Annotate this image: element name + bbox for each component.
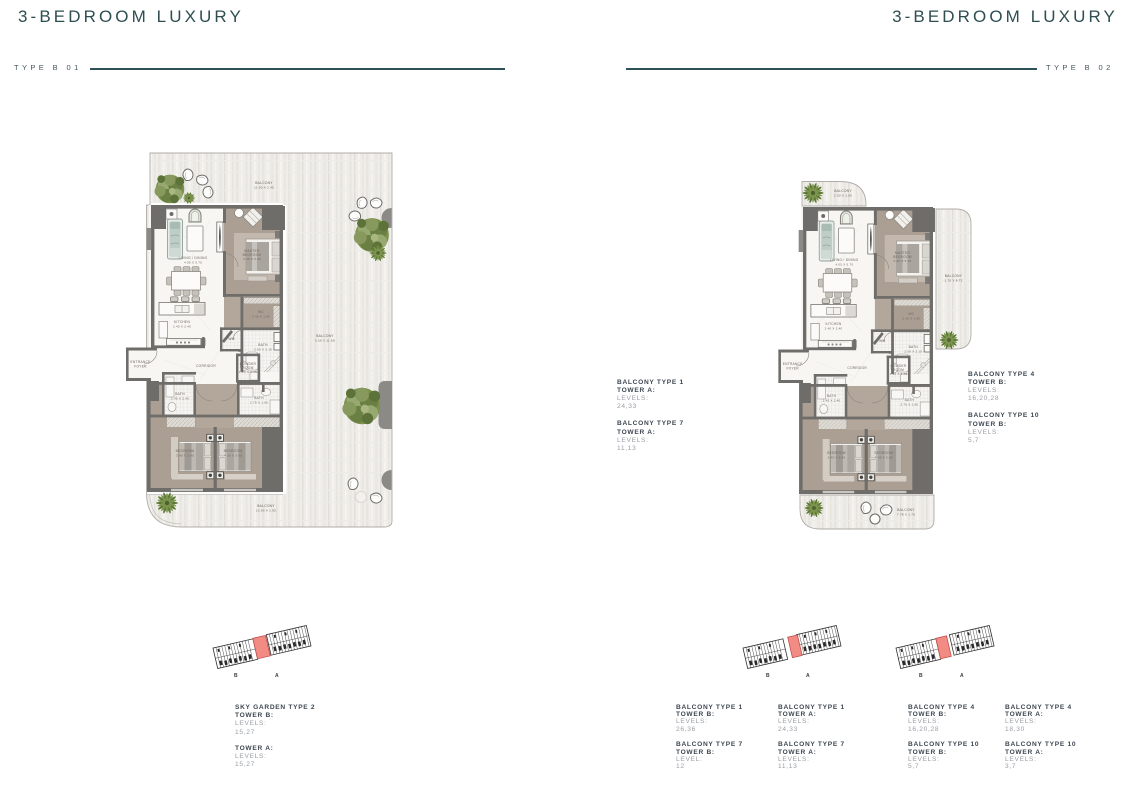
svg-text:BALCONY: BALCONY [257, 504, 275, 508]
svg-text:B: B [234, 673, 238, 679]
svg-text:13.90 X 1.95: 13.90 X 1.95 [256, 509, 276, 513]
svg-text:2.50 X 1.90: 2.50 X 1.90 [834, 194, 852, 198]
svg-text:BALCONY: BALCONY [255, 181, 273, 185]
svg-text:BALCONY: BALCONY [897, 508, 915, 512]
svg-text:7.78 X 1.75: 7.78 X 1.75 [897, 513, 915, 517]
svg-text:B: B [766, 673, 770, 679]
svg-text:1.70 X 8.75: 1.70 X 8.75 [944, 279, 962, 283]
svg-text:11.90 X 2.45: 11.90 X 2.45 [254, 186, 274, 190]
svg-text:A: A [806, 673, 810, 679]
svg-text:A: A [960, 673, 964, 679]
svg-text:BALCONY: BALCONY [834, 189, 852, 193]
svg-text:B: B [919, 673, 923, 679]
svg-text:A: A [275, 673, 279, 679]
svg-text:6.10 X 11.60: 6.10 X 11.60 [315, 339, 335, 343]
svg-text:BALCONY: BALCONY [316, 334, 334, 338]
svg-text:BALCONY: BALCONY [945, 274, 963, 278]
